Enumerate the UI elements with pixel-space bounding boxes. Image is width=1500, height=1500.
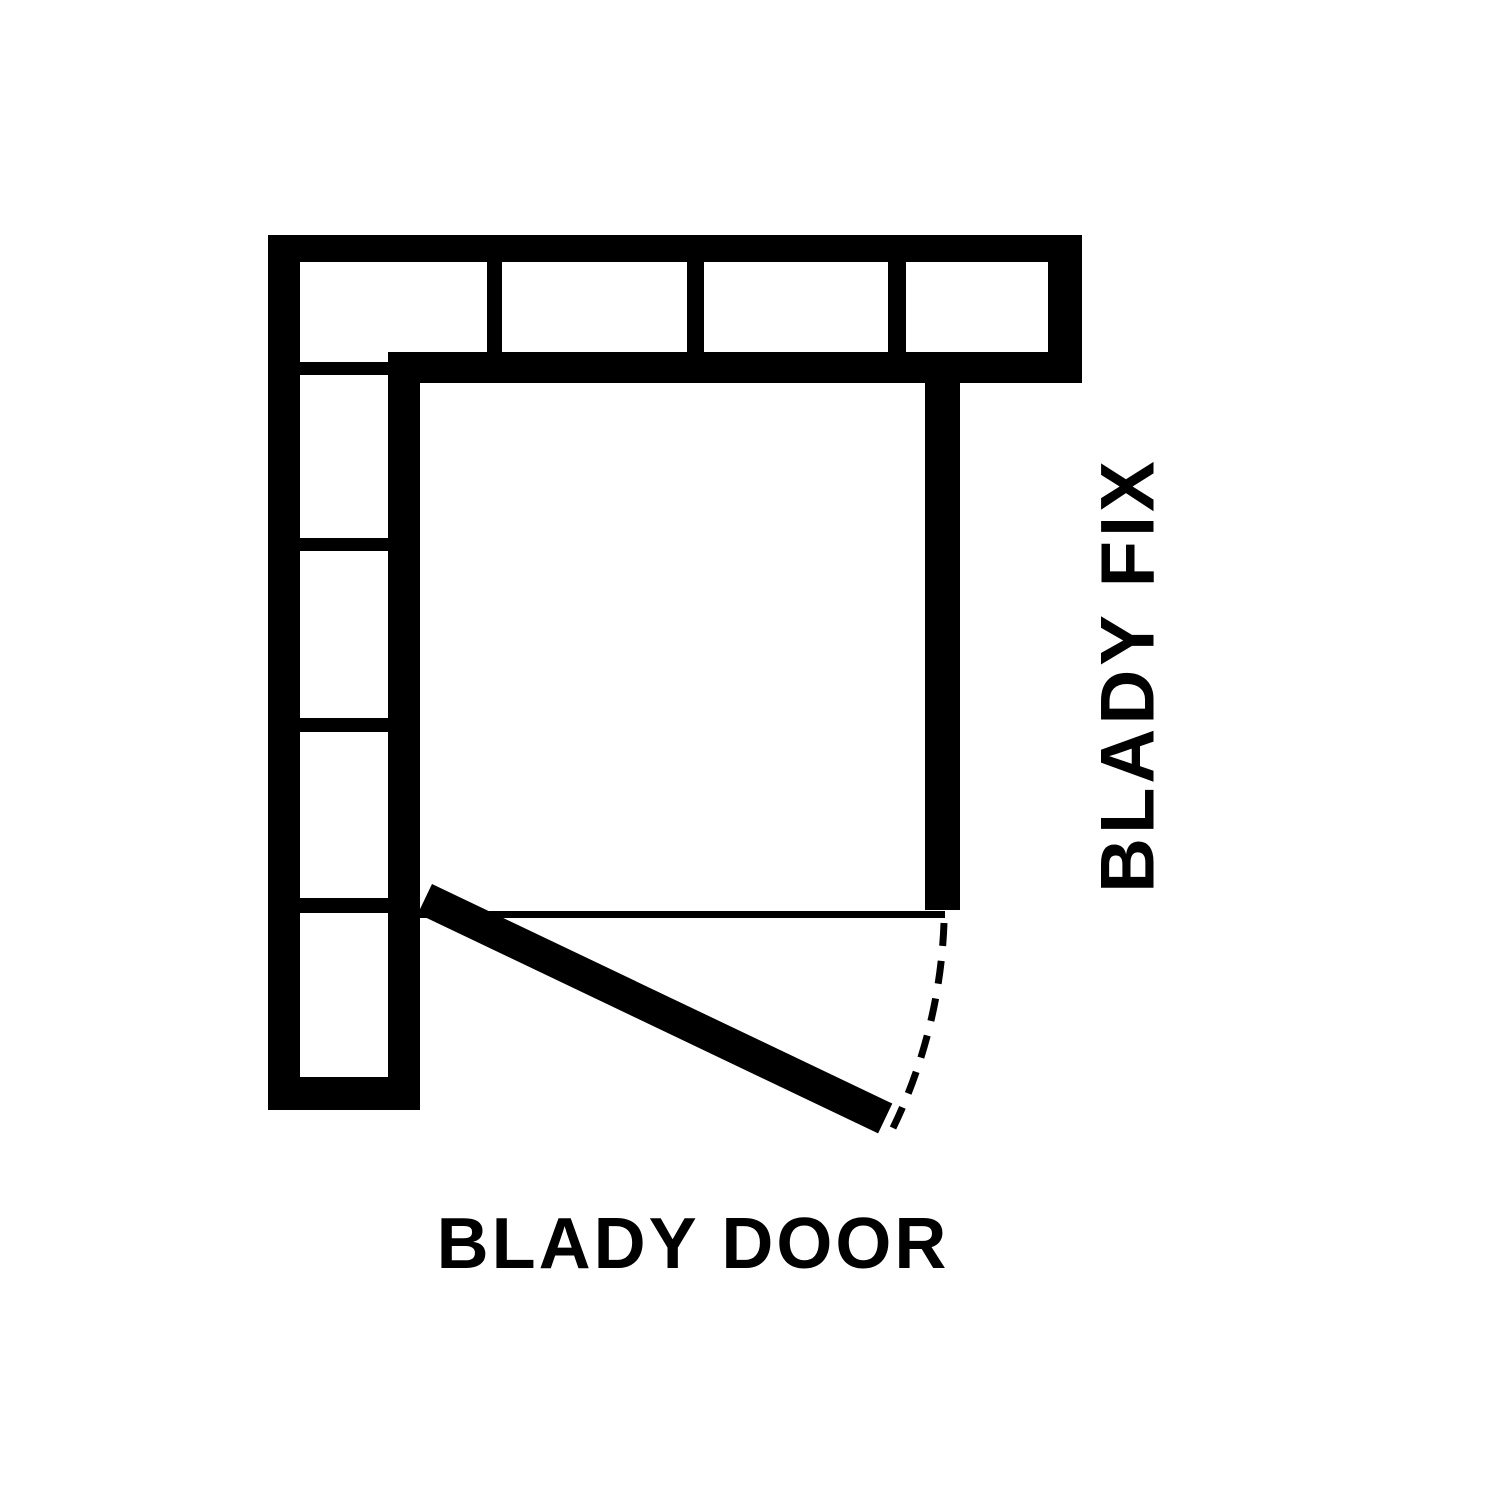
wall-left-brick-divider-2 [300, 538, 388, 551]
floor-plan-diagram: BLADY FIX BLADY DOOR [0, 0, 1500, 1500]
wall-top-brick-divider-2 [687, 262, 704, 352]
wall-left-inner-stroke [388, 352, 420, 1110]
wall-top-inner-stroke [388, 352, 1082, 383]
fix-panel-label: BLADY FIX [1086, 457, 1171, 893]
door-leaf-panel [418, 884, 893, 1133]
wall-top-brick-divider-1 [487, 262, 502, 352]
door-swing-arc [893, 923, 944, 1128]
fix-panel-bar [925, 383, 960, 910]
door-panel-label: BLADY DOOR [437, 1204, 950, 1284]
wall-top-brick-divider-3 [888, 262, 906, 352]
wall-top-outer-stroke [268, 235, 1082, 262]
wall-left-brick-divider-3 [300, 718, 388, 732]
wall-left-brick-divider-1 [300, 362, 388, 375]
wall-left-run [268, 235, 420, 1110]
wall-left-brick-divider-4 [300, 898, 388, 913]
diagram-page: BLADY FIX BLADY DOOR [0, 0, 1500, 1500]
wall-left-bottom-end-cap [268, 1077, 420, 1110]
wall-left-outer-stroke [268, 235, 300, 1110]
